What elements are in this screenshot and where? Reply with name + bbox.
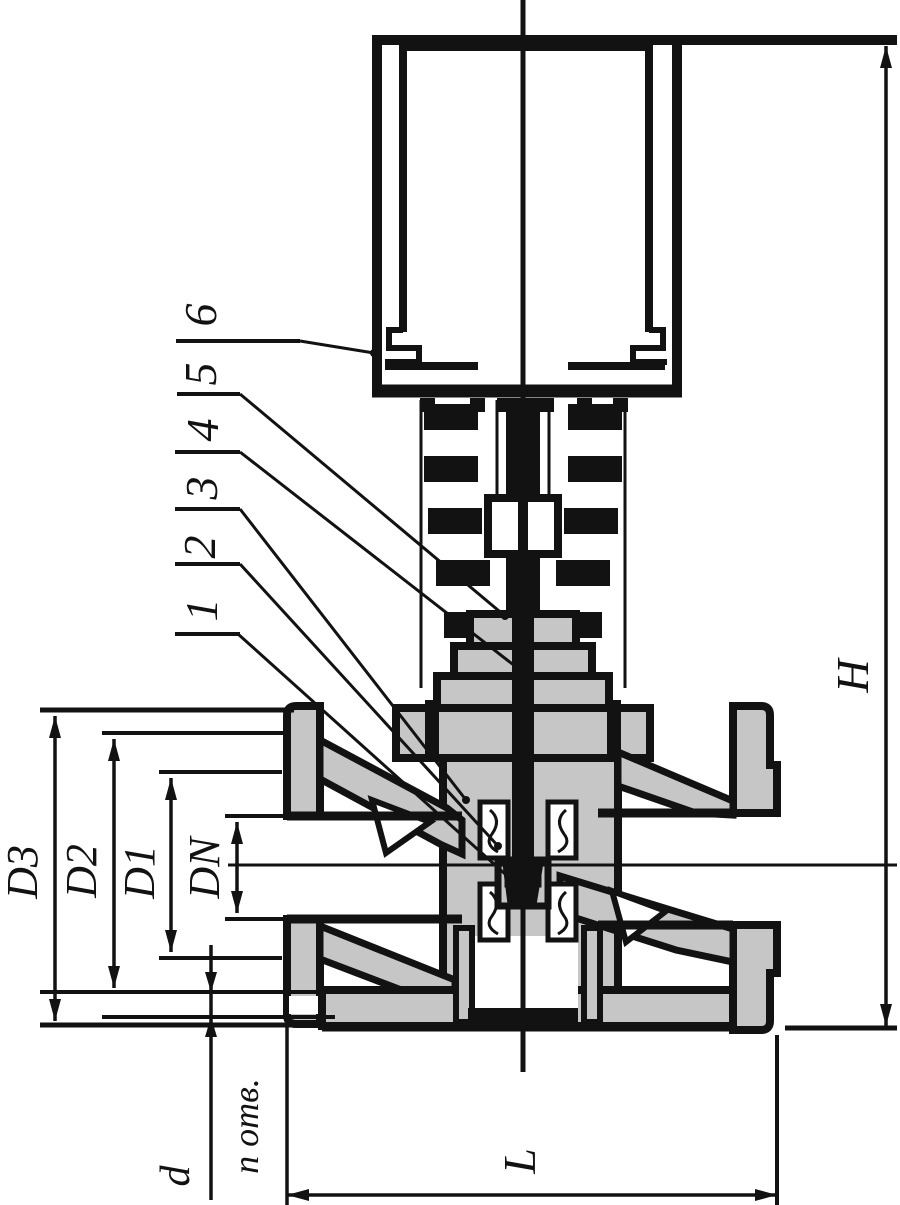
coupling-window-right (528, 502, 554, 550)
label-d1: D1 (118, 845, 162, 899)
callout-number-4: 4 (180, 419, 226, 442)
callout-6-dot (370, 349, 378, 357)
callout-6-leader (300, 341, 374, 353)
cover-bolt-right (584, 928, 600, 1022)
dn-arrow-bottom (231, 891, 243, 913)
label-dn: DN (183, 837, 227, 898)
l-arrow-left (287, 1189, 309, 1201)
housing-step-right (633, 330, 667, 362)
l-arrow-right (755, 1189, 777, 1201)
h-arrow-top (880, 46, 892, 68)
bolt-hole-gap (289, 996, 318, 1014)
actuator-housing (372, 36, 897, 396)
housing-step-left (385, 330, 419, 362)
label-bolt-hole-d: d (155, 1166, 197, 1187)
callout-2-dot (494, 842, 502, 850)
d2-arrow-bottom (108, 966, 120, 988)
h-arrow-bottom (880, 1004, 892, 1026)
callout-3-dot (462, 796, 470, 804)
bonnet-stud-left (425, 700, 439, 762)
dimension-DN (225, 816, 287, 919)
callout-5-dot (501, 612, 509, 620)
left-flange-top (287, 706, 320, 816)
valve-drawing (0, 0, 900, 1205)
drawing-canvas: D3 D2 D1 DN d n отв. L H 6 5 4 3 2 1 (0, 0, 900, 1205)
label-length-l: L (497, 1148, 543, 1174)
coupling-window-left (492, 502, 518, 550)
label-height-h: H (830, 659, 876, 692)
callout-number-5: 5 (178, 363, 224, 386)
callout-number-1: 1 (179, 599, 225, 622)
d3-arrow-top (49, 716, 61, 738)
right-flange-top (733, 706, 777, 813)
right-flange-bottom (733, 925, 777, 1030)
dimension-H (785, 46, 897, 1028)
d2-arrow-top (108, 739, 120, 761)
d-arrow-top (205, 972, 217, 992)
callout-number-6: 6 (178, 304, 224, 327)
dimension-d (205, 945, 217, 1200)
d3-arrow-bottom (49, 999, 61, 1021)
label-d3: D3 (1, 845, 45, 899)
callout-1-dot (510, 878, 518, 886)
cover-bolt-left (456, 928, 472, 1022)
callout-number-3: 3 (179, 477, 225, 500)
callout-number-2: 2 (177, 536, 223, 559)
dn-arrow-top (231, 822, 243, 844)
label-d2: D2 (60, 844, 104, 898)
d1-arrow-top (165, 778, 177, 800)
label-n-holes: n отв. (228, 1078, 264, 1174)
callout-4-dot (516, 666, 524, 674)
d1-arrow-bottom (165, 930, 177, 952)
upper-right-web (618, 752, 733, 815)
